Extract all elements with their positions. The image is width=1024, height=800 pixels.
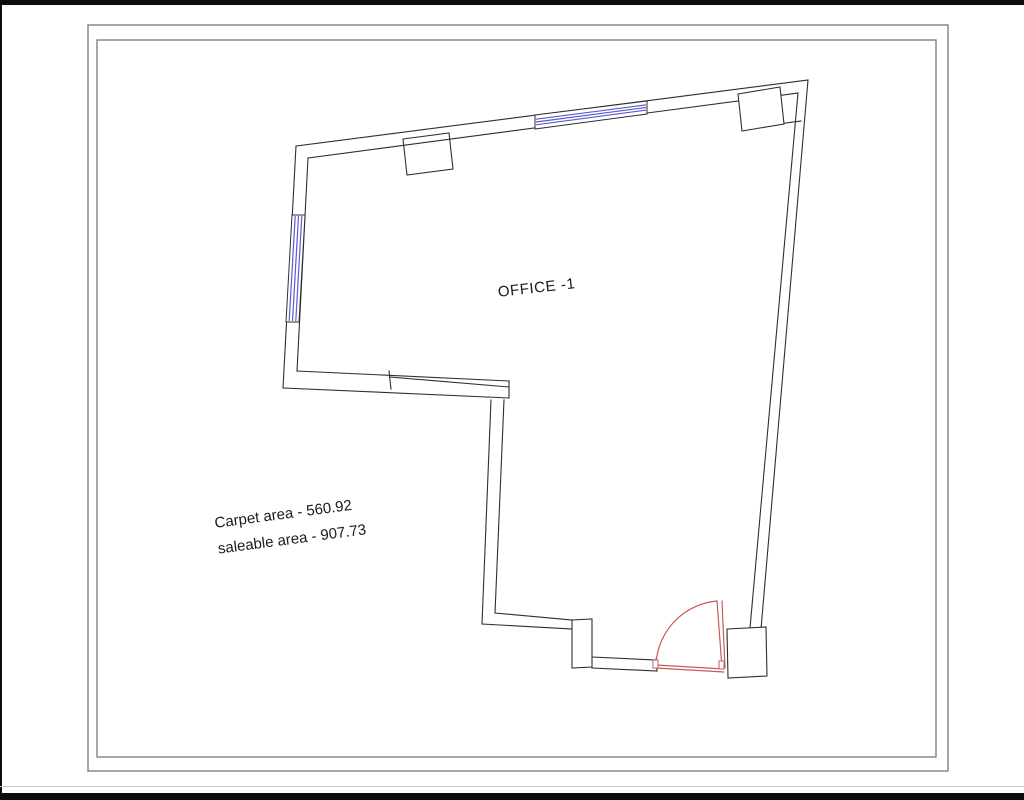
wall-outline	[283, 80, 808, 671]
corner-column	[738, 87, 784, 131]
bottom-left-column	[572, 619, 592, 668]
outer-border-frame	[88, 25, 948, 771]
top-window	[535, 101, 647, 129]
drawing-sheet: OFFICE -1 Carpet area - 560.92 saleable …	[0, 0, 1024, 800]
inner-border-frame	[97, 40, 936, 757]
bottom-right-column	[727, 627, 767, 678]
left-window	[286, 215, 305, 322]
entry-door	[653, 601, 725, 672]
door-swing-arc	[656, 601, 717, 664]
floor-plan-svg	[0, 0, 1024, 800]
